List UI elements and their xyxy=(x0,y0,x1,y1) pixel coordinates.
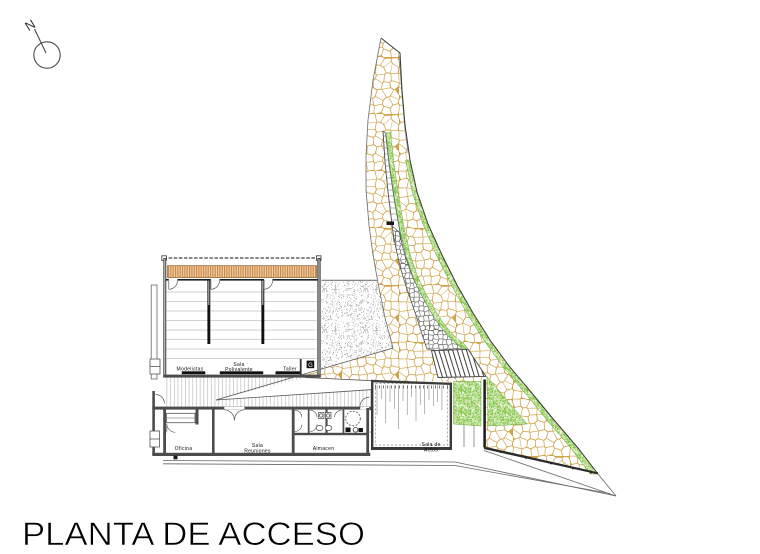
svg-text:PLANTA DE ACCESO: PLANTA DE ACCESO xyxy=(22,516,365,552)
svg-text:Actos: Actos xyxy=(424,447,438,453)
svg-text:Almacen: Almacen xyxy=(313,446,335,452)
svg-text:G: G xyxy=(308,363,313,369)
svg-text:Oficina: Oficina xyxy=(175,446,193,452)
svg-text:Taller: Taller xyxy=(283,367,297,373)
svg-text:Polivalente: Polivalente xyxy=(225,367,253,373)
svg-text:Modelistas: Modelistas xyxy=(177,367,204,373)
svg-text:Reuniones: Reuniones xyxy=(244,448,271,454)
